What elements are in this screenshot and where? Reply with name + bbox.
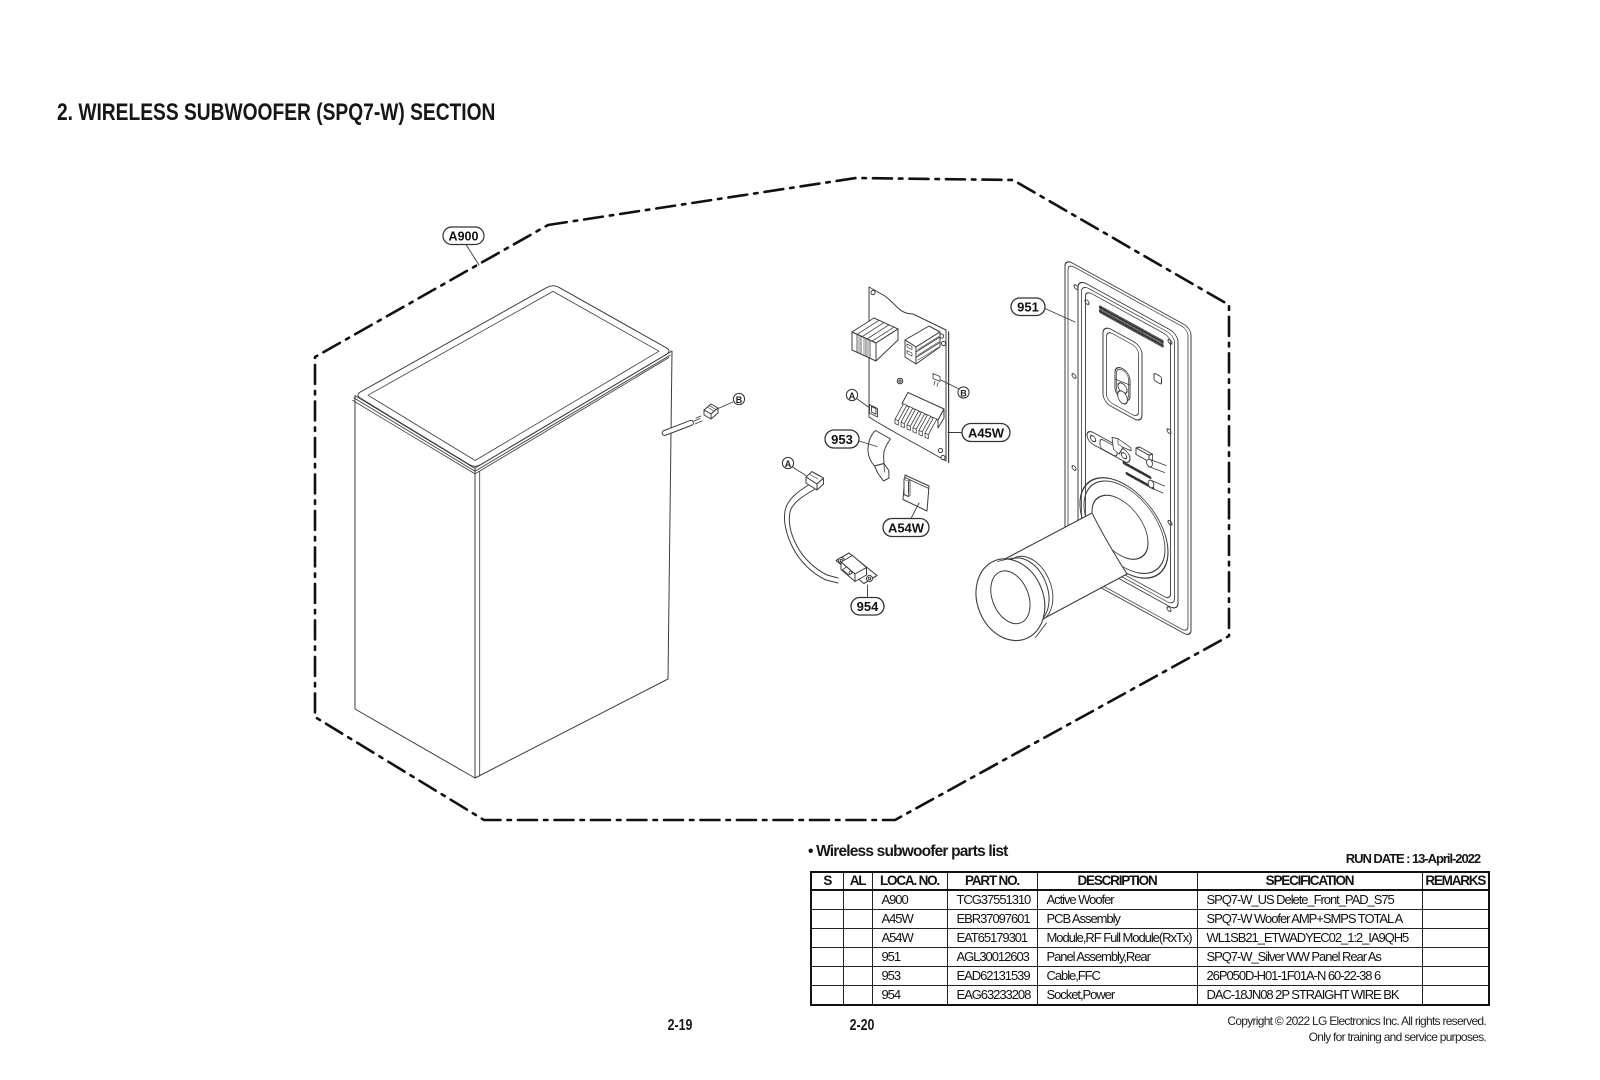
svg-text:A: A [849, 391, 856, 401]
svg-text:A900: A900 [449, 230, 479, 244]
svg-text:A54W: A54W [888, 520, 925, 535]
svg-text:951: 951 [1017, 300, 1039, 315]
svg-text:A: A [785, 459, 792, 469]
svg-text:953: 953 [831, 432, 853, 447]
svg-text:B: B [736, 395, 743, 405]
svg-text:954: 954 [857, 599, 879, 614]
svg-text:B: B [960, 388, 967, 398]
svg-text:A45W: A45W [968, 425, 1005, 440]
